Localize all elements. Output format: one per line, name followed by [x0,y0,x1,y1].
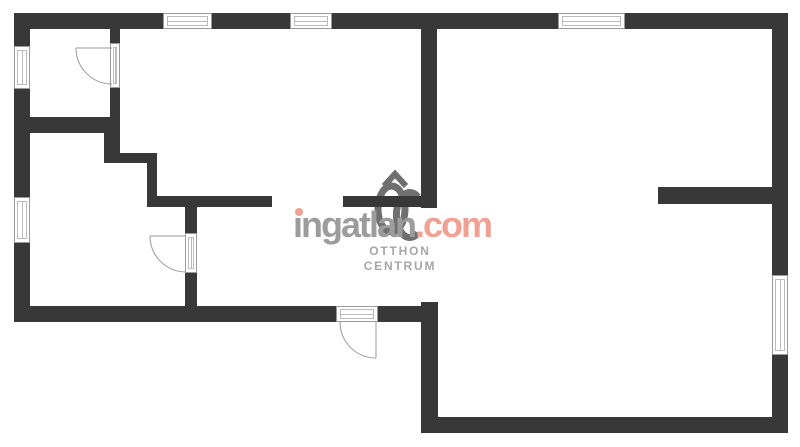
wall-central-lower [421,302,438,433]
window-top-2 [290,13,332,29]
window-top-3 [558,13,625,29]
logo-roof-chevron-icon [384,174,406,186]
logo-text-otthon: OTTHON [356,245,444,257]
floorplan-canvas: ingatlan.com OTTHON CENTRUM [0,0,800,447]
window-right-1 [772,275,788,355]
window-left-1 [14,46,30,89]
wall-exterior-top [14,13,788,29]
brand-text-tld: .com [415,204,491,245]
door-frame-room1 [110,43,120,88]
wall-central-upper [421,29,437,208]
brand-text-ingatlan: ingatlan [293,204,415,245]
brand-watermark: ingatlan.com [293,207,491,243]
wall-hall-top-left [147,196,272,207]
brand-i-dot-icon [295,208,303,216]
wall-bottom-right-section [421,417,788,433]
wall-right-room-stub [658,187,788,204]
logo-text-centrum: CENTRUM [356,260,444,272]
door-swing-entry-arc [340,322,376,358]
door-swing-room1-arc [76,48,112,84]
door-frame-entry [336,306,378,322]
door-swing-room2-arc [150,236,186,272]
wall-room1-bottom [14,117,120,133]
window-left-2 [14,197,30,243]
wall-exterior-right [772,13,788,433]
otthon-centrum-wordmark: OTTHON CENTRUM [356,245,444,272]
window-top-1 [163,13,212,29]
door-frame-room2 [185,233,197,273]
